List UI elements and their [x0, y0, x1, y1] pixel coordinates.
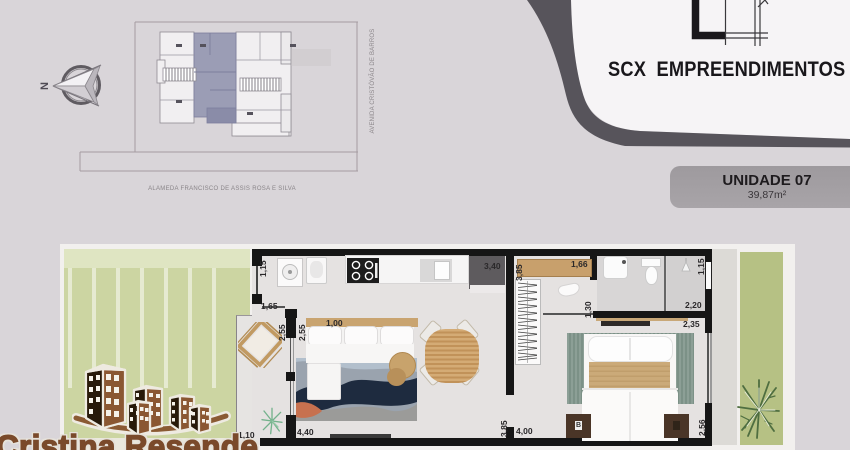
svg-text:ALAMEDA FRANCISCO DE ASSIS ROS: ALAMEDA FRANCISCO DE ASSIS ROSA E SILVA	[148, 186, 296, 192]
svg-text:N: N	[39, 82, 51, 90]
svg-text:AVENIDA CRISTÓVÃO DE BARROS: AVENIDA CRISTÓVÃO DE BARROS	[369, 29, 376, 134]
